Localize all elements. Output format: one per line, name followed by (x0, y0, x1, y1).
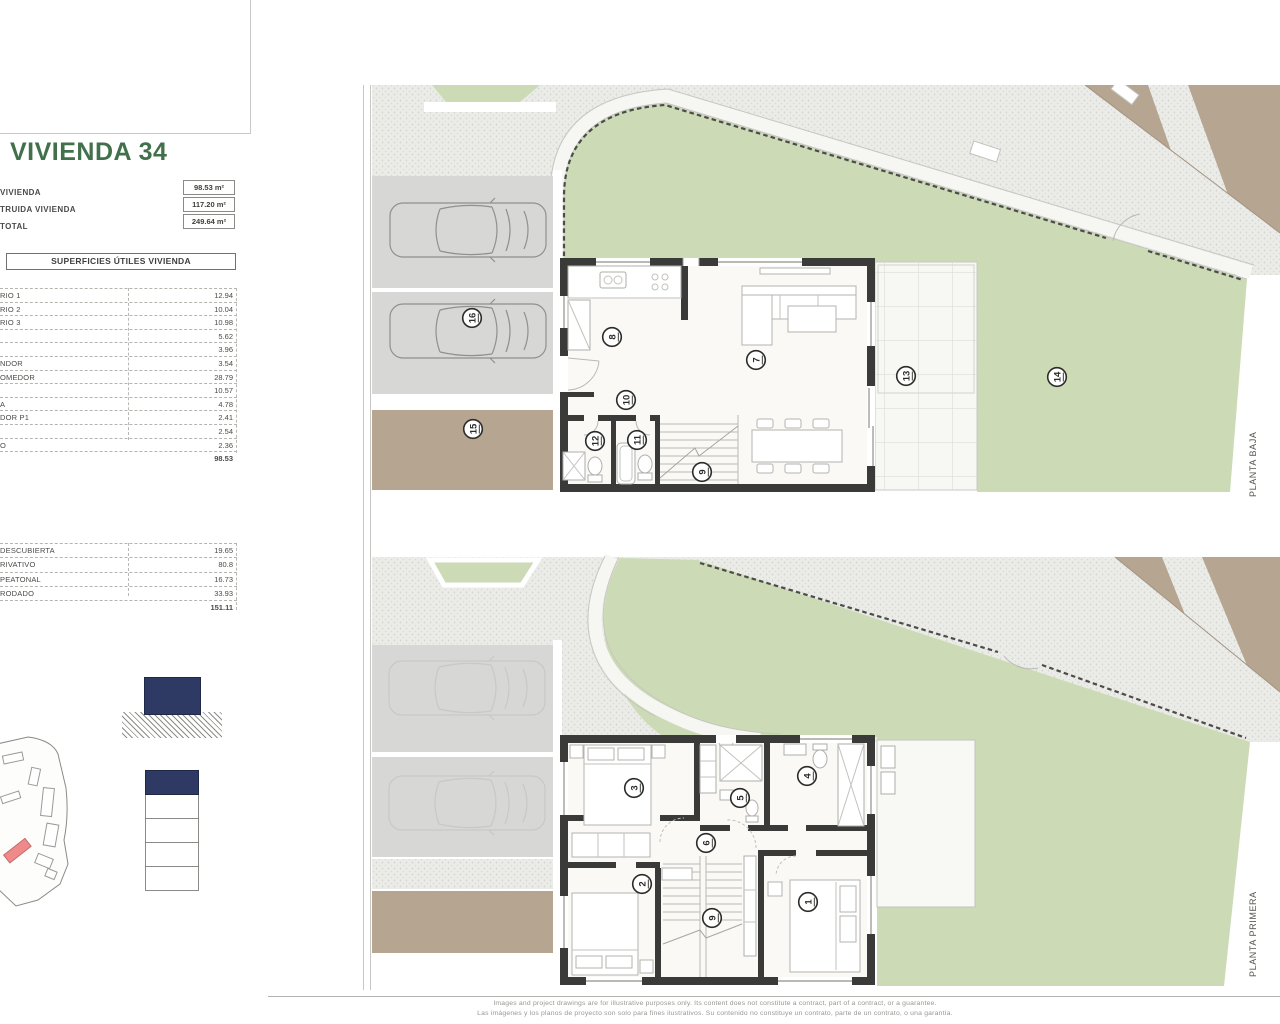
parking-stall (372, 292, 556, 394)
planta-baja-label: PLANTA BAJA (1248, 423, 1258, 497)
svg-text:5: 5 (735, 795, 746, 801)
toilet-icon (588, 457, 602, 475)
svg-text:9: 9 (707, 915, 718, 920)
storey-key-row (145, 819, 199, 843)
table-row: OMEDOR28.79 (0, 370, 237, 384)
section-key-highlight-block (144, 677, 201, 715)
summary-row: VIVIENDA (0, 182, 41, 200)
svg-text:14: 14 (1052, 371, 1063, 382)
room-number: 1 (799, 893, 818, 912)
bed-dorm3 (570, 745, 665, 825)
terrace (875, 262, 977, 490)
parking-stall (372, 757, 560, 857)
summary-label: VIVIENDA (0, 188, 41, 197)
room-number: 4 (798, 767, 817, 786)
planta-primera-siteplan: 3 5 4 6 2 9 1 (372, 556, 1280, 986)
storey-key-stack (145, 770, 199, 891)
door-opening (716, 735, 736, 743)
table-row: A4.78 (0, 397, 237, 411)
room-number: 9 (693, 463, 712, 482)
toilet-icon (813, 750, 827, 768)
page-title: VIVIENDA 34 (10, 138, 167, 167)
planter-lawn (430, 560, 538, 585)
summary-row: TOTAL (0, 216, 28, 234)
room-number: 2 (633, 875, 652, 894)
table-divider (128, 543, 129, 596)
svg-text:1: 1 (803, 899, 814, 905)
table-row: 10.57 (0, 383, 237, 397)
table-row: 2.54 (0, 424, 237, 438)
driveway (372, 891, 555, 953)
room-number: 3 (625, 779, 644, 798)
house-planta-baja (560, 258, 875, 492)
floorplans-drawing: 8 7 10 12 11 9 13 14 15 16 (363, 85, 1280, 990)
table-row: RODADO33.93 (0, 586, 237, 600)
room-number: 15 (464, 420, 483, 439)
driveway (372, 410, 556, 490)
summary-value-box: 117.20 m² (183, 197, 235, 212)
room-number: 5 (731, 789, 750, 808)
path (424, 102, 556, 112)
plan-sheet: VIVIENDA 34 VIVIENDA 98.53 m² TRUIDA VIV… (0, 0, 1280, 1024)
closet (700, 745, 716, 793)
svg-text:4: 4 (802, 773, 813, 779)
table-divider (236, 543, 237, 610)
door-opening (683, 258, 699, 266)
svg-text:3: 3 (629, 785, 640, 790)
table-row: 3.96 (0, 342, 237, 356)
planta-baja-siteplan: 8 7 10 12 11 9 13 14 15 16 (372, 85, 1280, 492)
svg-text:16: 16 (467, 313, 478, 324)
storey-key-row-highlight (145, 770, 199, 795)
coffee-table (788, 306, 836, 332)
sink-icon (784, 744, 806, 755)
kitchen-partition (681, 266, 688, 320)
summary-label: TRUIDA VIVIENDA (0, 205, 76, 214)
useful-areas-table: RIO 112.94 RIO 210.04 RIO 310.98 5.62 3.… (0, 288, 237, 465)
table-total-row: 151.11 (0, 600, 237, 614)
section-key-ground-hatch (122, 712, 222, 738)
svg-text:12: 12 (590, 436, 601, 447)
planta-primera-label: PLANTA PRIMERA (1248, 883, 1258, 977)
room-number: 12 (586, 432, 605, 451)
tv-unit (760, 268, 830, 274)
house-planta-primera (560, 735, 875, 985)
table-row: PEATONAL16.73 (0, 572, 237, 586)
table-row: O2.36 (0, 438, 237, 452)
toilet-icon (638, 455, 652, 473)
room-number: 16 (463, 309, 482, 328)
exterior-areas-table: DESCUBIERTA19.65 RIVATIVO80.8 PEATONAL16… (0, 543, 237, 614)
svg-text:7: 7 (751, 357, 762, 362)
summary-value-box: 249.64 m² (183, 214, 235, 229)
entrance-door (560, 356, 568, 392)
useful-areas-header: SUPERFICIES ÚTILES VIVIENDA (6, 253, 236, 270)
table-row: DESCUBIERTA19.65 (0, 543, 237, 557)
svg-text:13: 13 (901, 371, 912, 382)
wardrobe (572, 833, 650, 857)
storey-key-row (145, 843, 199, 867)
dining-table (752, 419, 842, 473)
room-number: 6 (697, 834, 716, 853)
table-divider (128, 288, 129, 440)
titleblock-vline (250, 0, 251, 133)
room-number: 9 (703, 909, 722, 928)
table-total-row: 98.53 (0, 451, 237, 465)
table-divider (236, 288, 237, 453)
summary-label: TOTAL (0, 222, 28, 231)
svg-text:10: 10 (621, 395, 632, 406)
pavement (372, 859, 560, 889)
room-number: 8 (603, 328, 622, 347)
table-row: RIO 112.94 (0, 288, 237, 302)
summary-value-box: 98.53 m² (183, 180, 235, 195)
site-location-map (0, 728, 74, 910)
ac-unit (881, 772, 895, 794)
room-number: 7 (747, 351, 766, 370)
table-row: DOR P12.41 (0, 410, 237, 424)
table-row: RIVATIVO80.8 (0, 557, 237, 571)
table-row: NDOR3.54 (0, 356, 237, 370)
room-number: 10 (617, 391, 636, 410)
room-number: 11 (628, 431, 647, 450)
room-number: 13 (897, 367, 916, 386)
table-row: 5.62 (0, 329, 237, 343)
summary-row: TRUIDA VIVIENDA (0, 199, 76, 217)
titleblock-hline (0, 133, 251, 134)
sliding-door (867, 386, 875, 466)
building-footprint (41, 788, 55, 817)
svg-text:6: 6 (701, 840, 712, 845)
closet (744, 856, 756, 956)
disclaimer-es: Las imágenes y los planos de proyecto so… (280, 1010, 1150, 1017)
disclaimer-en: Images and project drawings are for illu… (280, 1000, 1150, 1007)
svg-text:15: 15 (468, 423, 479, 434)
storey-key-row (145, 867, 199, 891)
svg-text:9: 9 (697, 469, 708, 474)
svg-text:2: 2 (637, 881, 648, 886)
room-number: 14 (1048, 368, 1067, 387)
table-row: RIO 210.04 (0, 302, 237, 316)
path (372, 396, 556, 409)
svg-text:8: 8 (607, 334, 618, 339)
storey-key-row (145, 795, 199, 819)
ac-unit (881, 746, 895, 768)
footer-rule (268, 996, 1280, 997)
table-row: RIO 310.98 (0, 315, 237, 329)
svg-text:11: 11 (632, 434, 643, 445)
